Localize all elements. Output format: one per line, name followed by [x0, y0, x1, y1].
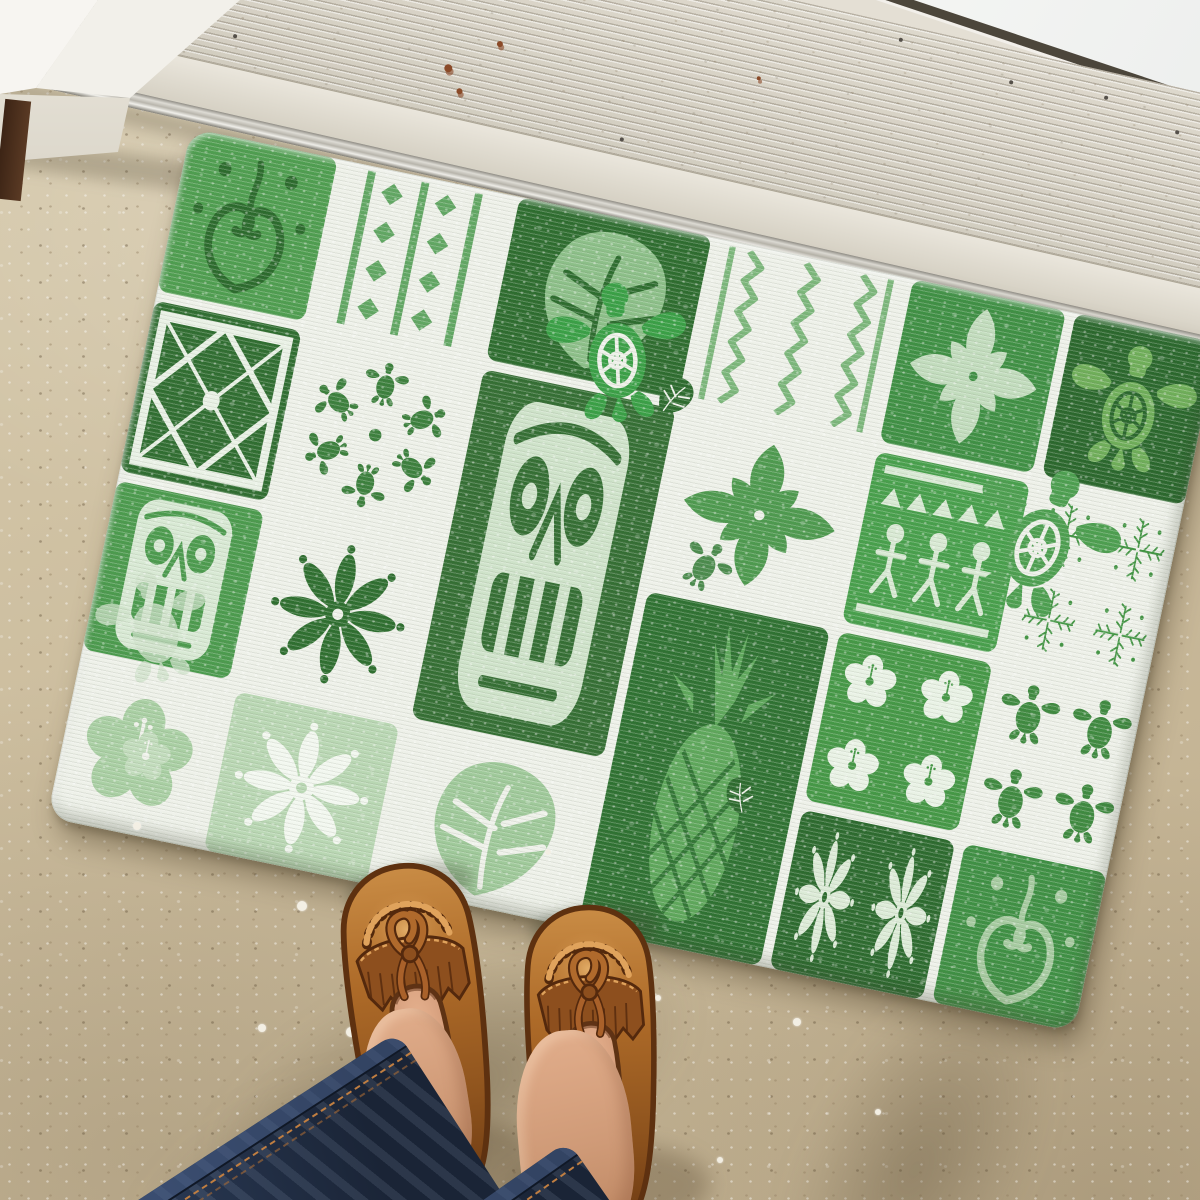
dark-stain — [1175, 130, 1180, 135]
turtle-motif — [935, 435, 1146, 646]
dark-stain — [1104, 95, 1109, 100]
rust-stain — [456, 88, 463, 95]
dark-stain — [898, 37, 903, 42]
dark-stain — [619, 137, 624, 142]
honu-motif — [668, 528, 743, 603]
palmleaf-motif — [716, 772, 762, 818]
rust-stain — [444, 63, 454, 73]
dark-stain — [1009, 80, 1014, 85]
rust-stain — [756, 76, 761, 81]
rust-stain — [496, 40, 503, 47]
porch-scene — [0, 0, 1200, 1200]
honu-motif — [85, 558, 224, 697]
hibiscus-motif — [108, 718, 184, 794]
